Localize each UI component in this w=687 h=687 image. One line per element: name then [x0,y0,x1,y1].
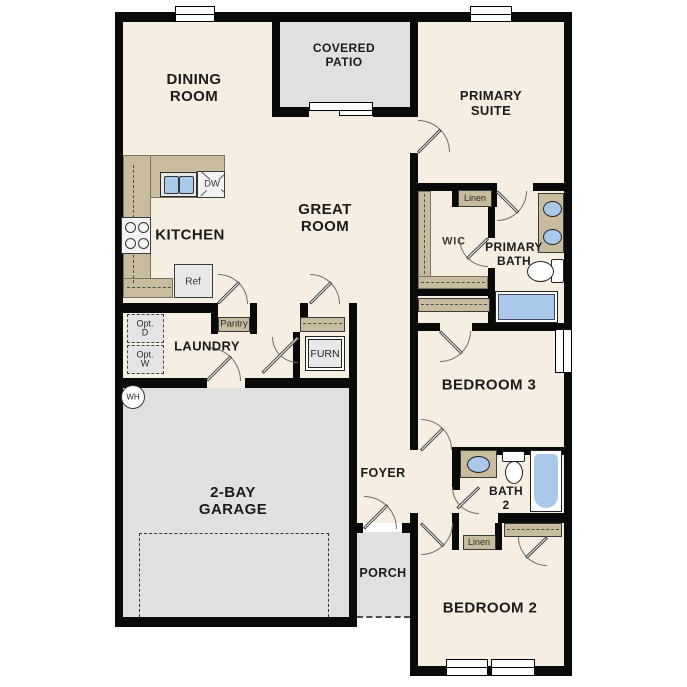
wall-wic-bottom [410,289,495,296]
primary-window [470,6,512,22]
wall-patio-right [410,14,418,117]
wall-bath2-bottom [498,513,564,523]
wall-foyer-bottom-b [402,523,418,533]
bath2-sink-icon [467,456,490,473]
bath2-label: BATH 2 [489,485,523,513]
wic-shelf-bottom-dash [421,282,485,283]
shower-pan-icon [498,294,555,320]
wall-garage-top-b [245,378,349,388]
kitchen-label: KITCHEN [155,226,224,243]
great-room-label: GREAT ROOM [298,201,351,236]
dining-window [175,6,215,22]
primary-bath-label: PRIMARY BATH [485,241,543,269]
wall-pantry-right [250,303,257,334]
covered-patio-label: COVERED PATIO [313,42,375,70]
porch-open-edge [357,616,410,618]
kitchen-sink [160,172,197,197]
refrigerator-label: Ref [185,276,201,288]
optional-washer-label: Opt. W [136,351,153,370]
water-heater-label: WH [126,392,139,401]
wall-bed3-top-b [472,323,564,331]
pantry-label: Pantry [220,320,247,331]
linen-primary-label: Linen [464,193,486,203]
burner-icon [125,238,136,249]
bedroom2-window-left [446,659,488,676]
bed3-closet-shelf [418,298,490,312]
sink-basin-left-icon [164,176,179,194]
vanity-sink-icon [543,201,562,217]
kitchen-counter-bottom [123,278,173,298]
linen-hall-label: Linen [468,537,490,547]
bedroom2-window-right [491,659,535,676]
wall-bedroom2-left [410,513,418,676]
wall-foyer-bottom-a [349,523,363,533]
patio-slider-panel [339,110,373,116]
stove [121,217,151,254]
wall-garage-bottom [115,617,357,627]
wall-left [115,12,123,627]
wall-garage-right [349,303,357,627]
wall-suite-bottom-b [533,183,564,191]
sink-basin-right-icon [179,176,194,194]
counter-dash-horizontal [127,287,171,288]
bed2-closet-dash [507,529,559,530]
bath2-toilet-bowl-icon [505,461,523,484]
bath2-tub [530,450,562,512]
optional-dryer-label: Opt. D [136,320,153,339]
vanity-sink-icon [543,229,562,245]
furn-closet-shelf [300,317,345,332]
bed2-closet-shelf [504,523,562,537]
floor-plan: DW Ref Pantry FURN Opt. D Opt. W WH Line… [0,0,687,687]
bed3-closet-dash [421,304,487,305]
laundry-label: LAUNDRY [174,340,240,355]
furnace-label: FURN [310,348,339,360]
burner-icon [125,222,136,233]
garage-door-outline [139,533,329,617]
burner-icon [138,238,149,249]
wall-pantry-left [211,303,218,334]
burner-icon [138,222,149,233]
wall-linen2-left [452,513,459,550]
wall-patio-left [272,12,280,117]
garage-label: 2-BAY GARAGE [199,484,267,519]
bedroom3-window [555,329,572,373]
wic-label: WIC [442,236,466,249]
wall-bed3-top-a [410,323,440,331]
wall-bath2-left [452,447,460,490]
primary-suite-label: PRIMARY SUITE [460,89,522,119]
wall-patio-bottom-a [272,107,309,117]
porch-label: PORCH [359,566,406,580]
foyer-label: FOYER [360,466,405,480]
bedroom2-label: BEDROOM 2 [443,599,537,616]
dishwasher-label: DW [203,180,221,191]
dining-room-label: DINING ROOM [167,71,222,106]
primary-shower [495,291,558,323]
furn-shelf-dash [303,323,342,324]
bedroom3-label: BEDROOM 3 [442,376,536,393]
tub-basin-icon [534,454,558,508]
wic-shelf-left-dash [424,194,425,284]
wall-linen2-right [495,523,502,550]
wall-kitchen-a [115,303,211,313]
wall-hall-vertical [410,153,418,450]
